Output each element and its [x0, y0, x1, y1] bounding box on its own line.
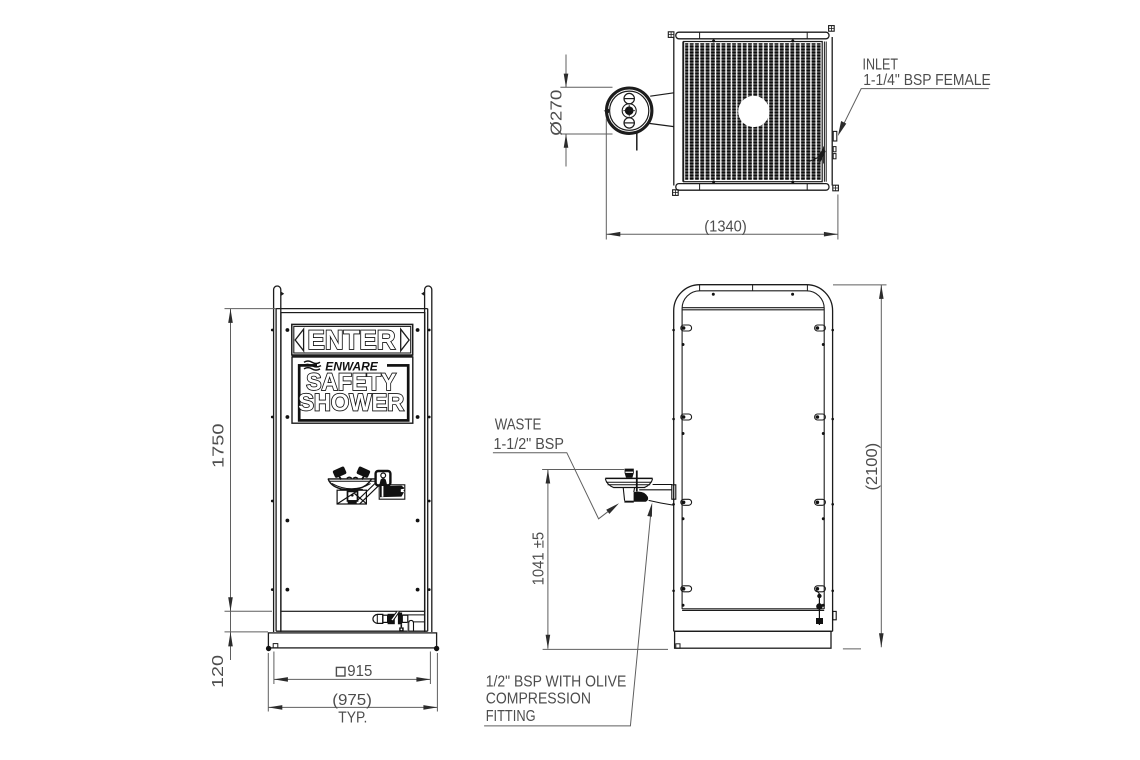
- svg-text:COMPRESSION: COMPRESSION: [486, 691, 591, 708]
- svg-text:(2100): (2100): [864, 443, 881, 491]
- svg-text:1-1/2" BSP: 1-1/2" BSP: [494, 436, 564, 453]
- svg-text:915: 915: [347, 663, 372, 680]
- svg-text:120: 120: [210, 655, 227, 688]
- svg-text:1/2" BSP WITH OLIVE: 1/2" BSP WITH OLIVE: [486, 674, 627, 691]
- svg-text:(975): (975): [332, 692, 372, 709]
- svg-text:Ø270: Ø270: [549, 90, 566, 136]
- svg-text:WASTE: WASTE: [495, 417, 542, 434]
- svg-text:TYP.: TYP.: [338, 710, 367, 727]
- svg-text:1041 ±5: 1041 ±5: [531, 532, 548, 586]
- svg-text:FITTING: FITTING: [486, 708, 536, 725]
- svg-text:1-1/4" BSP FEMALE: 1-1/4" BSP FEMALE: [863, 72, 991, 89]
- svg-text:ENTER: ENTER: [308, 325, 396, 355]
- svg-text:(1340): (1340): [704, 219, 746, 236]
- svg-text:SHOWER: SHOWER: [298, 391, 404, 417]
- svg-text:1750: 1750: [211, 423, 228, 468]
